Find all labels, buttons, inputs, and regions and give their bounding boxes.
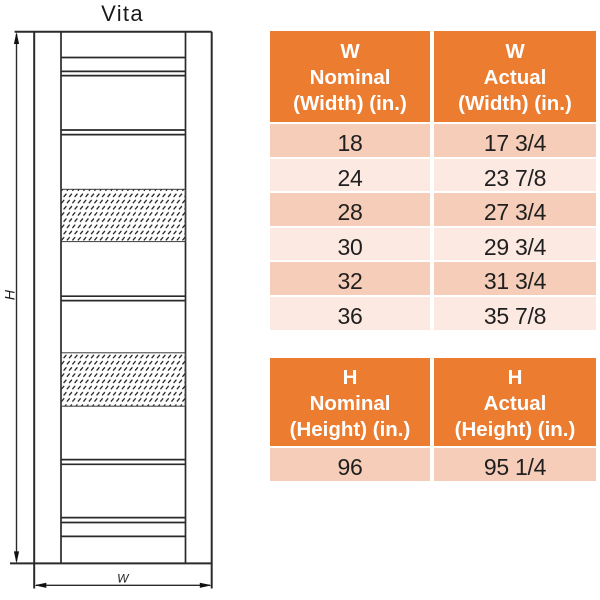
svg-text:H: H [2, 289, 18, 300]
svg-text:W: W [117, 572, 130, 586]
